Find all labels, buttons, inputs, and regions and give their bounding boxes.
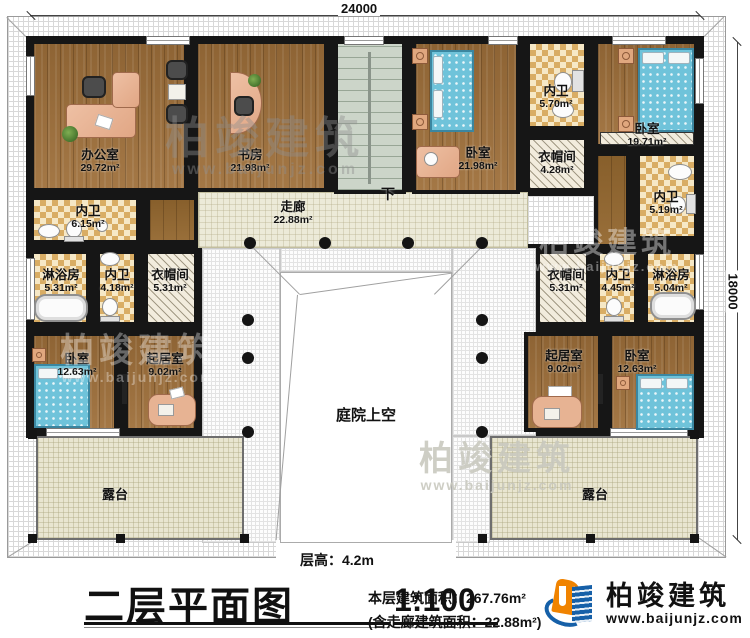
window [146, 36, 190, 45]
toilet [606, 298, 622, 316]
post [116, 534, 125, 543]
floor-area-main: 本层建筑面积：267.76m² [368, 588, 568, 608]
sink [668, 164, 692, 180]
window [488, 36, 518, 45]
column [242, 314, 254, 326]
label-bedroom-topright: 卧室19.71m² [597, 122, 697, 148]
column [319, 237, 331, 249]
hall-left-wing [146, 196, 198, 244]
column [242, 352, 254, 364]
pillow [433, 56, 443, 84]
label-terrace-left: 露台 [65, 488, 165, 503]
logo-blue-building [572, 585, 592, 623]
tv [598, 374, 603, 404]
floor-height-note: 层高：4.2m [300, 550, 460, 570]
floorplan-page: 办公室29.72m² 书房21.98m² 卧室21.98m² 内卫5.70m² … [0, 0, 750, 638]
guest-chair [166, 60, 188, 80]
coffee-table [544, 408, 560, 420]
label-courtyard: 庭院上空 [296, 407, 436, 424]
tv [122, 374, 127, 404]
window [344, 36, 384, 45]
label-living-left: 起居室9.02m² [115, 352, 215, 378]
hall-right-wing [594, 152, 630, 248]
sink [604, 252, 624, 266]
pillow [433, 90, 443, 118]
window [695, 58, 704, 104]
sink [100, 252, 120, 266]
post [478, 534, 487, 543]
toilet-tank [64, 236, 84, 242]
post [690, 534, 699, 543]
nightstand [412, 48, 428, 64]
label-bedroom-top: 卧室21.98m² [428, 146, 528, 172]
window [46, 428, 120, 437]
brand-logo-icon [542, 574, 600, 632]
title-underline [84, 622, 390, 625]
label-bedroom-right: 卧室12.63m² [587, 349, 687, 375]
label-shower-right: 淋浴房5.04m² [631, 268, 711, 294]
pillow [640, 378, 662, 389]
brand-url: www.baijunjz.com [606, 610, 750, 626]
column [476, 314, 488, 326]
nightstand [616, 376, 630, 390]
window [26, 56, 35, 96]
post [28, 430, 37, 439]
post [28, 534, 37, 543]
column [402, 237, 414, 249]
toilet-tank [100, 316, 120, 322]
label-bath-top: 内卫5.70m² [516, 84, 596, 110]
nightstand [412, 114, 428, 130]
side-table [168, 84, 186, 100]
label-bedroom-left: 卧室12.63m² [27, 352, 127, 378]
brand-name: 柏竣建筑 [606, 574, 746, 613]
label-bath-lefttop: 内卫6.15m² [48, 204, 128, 230]
label-closet-left: 衣帽间5.31m² [130, 268, 210, 294]
title-underline-thin [84, 627, 390, 628]
plant [62, 126, 78, 142]
label-corridor: 走廊22.88m² [243, 200, 343, 226]
label-closet-top: 衣帽间4.28m² [517, 150, 597, 176]
courtyard-walkway-top [280, 248, 452, 272]
label-bath-righttop: 内卫5.19m² [626, 190, 706, 216]
column [244, 237, 256, 249]
post [240, 534, 249, 543]
label-study: 书房21.98m² [200, 148, 300, 174]
stair-rail [368, 52, 371, 184]
dimension-top-value: 24000 [338, 1, 380, 16]
plant [248, 74, 261, 87]
dimension-right-value: 18000 [726, 270, 741, 312]
guest-chair [166, 104, 188, 124]
column [476, 352, 488, 364]
post [690, 430, 699, 439]
office-desk-return [112, 72, 140, 108]
column [476, 426, 488, 438]
coffee-table [158, 404, 174, 416]
label-stair-down: 下 [377, 186, 399, 202]
column [476, 237, 488, 249]
window [612, 36, 666, 45]
office-chair [82, 76, 106, 98]
bathtub [650, 292, 696, 320]
courtyard-walkway-right-lower [452, 436, 490, 543]
toilet-tank [604, 316, 624, 322]
column [242, 426, 254, 438]
bathtub [34, 294, 88, 322]
post [586, 534, 595, 543]
label-office: 办公室29.72m² [50, 148, 150, 174]
pillow [668, 52, 690, 64]
label-terrace-right: 露台 [545, 488, 645, 503]
pillow [666, 378, 688, 389]
study-chair [234, 96, 254, 116]
toilet [102, 298, 118, 316]
logo-white-bar [559, 586, 566, 606]
pillow [642, 52, 664, 64]
nightstand [618, 48, 634, 64]
